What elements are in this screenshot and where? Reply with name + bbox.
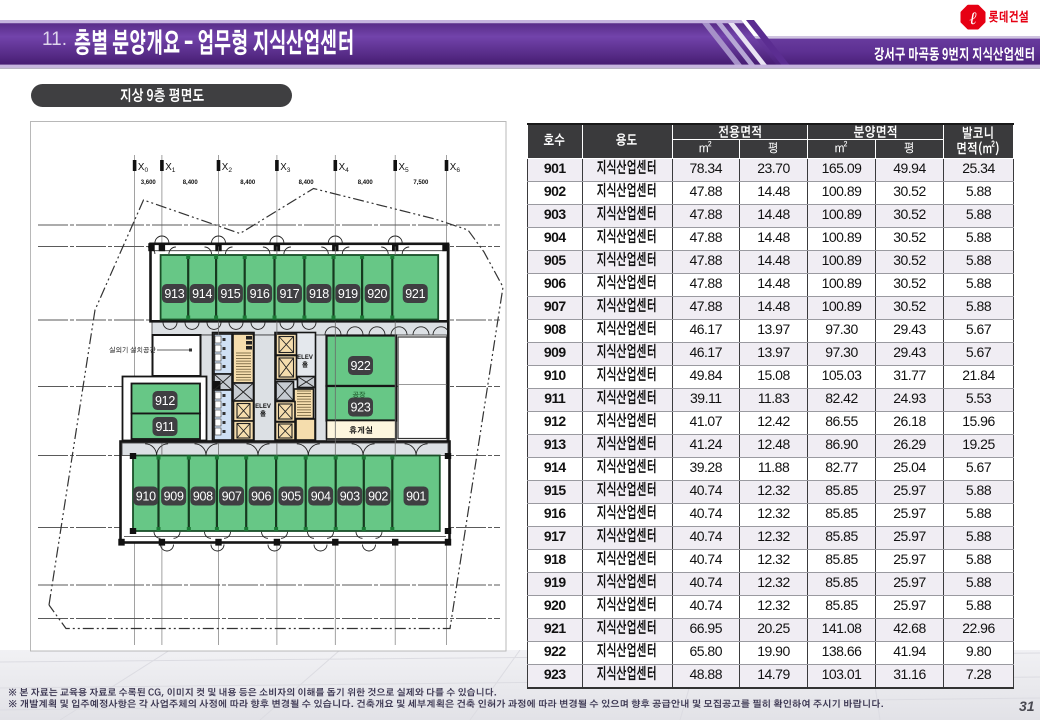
svg-text:909: 909 bbox=[164, 490, 184, 504]
svg-text:11.: 11. bbox=[42, 29, 67, 50]
svg-text:8,400: 8,400 bbox=[240, 180, 256, 186]
svg-text:8,400: 8,400 bbox=[183, 180, 199, 186]
svg-text:903: 903 bbox=[340, 490, 360, 504]
svg-text:915: 915 bbox=[220, 287, 240, 301]
svg-text:913: 913 bbox=[164, 287, 184, 301]
svg-text:7,500: 7,500 bbox=[413, 180, 429, 186]
svg-text:906: 906 bbox=[251, 490, 271, 504]
svg-text:908: 908 bbox=[193, 490, 213, 504]
svg-text:8,400: 8,400 bbox=[358, 180, 374, 186]
svg-text:923: 923 bbox=[351, 401, 371, 415]
svg-text:916: 916 bbox=[250, 287, 270, 301]
svg-text:904: 904 bbox=[311, 490, 331, 504]
svg-text:910: 910 bbox=[136, 490, 156, 504]
svg-text:905: 905 bbox=[281, 490, 301, 504]
svg-text:ℓ: ℓ bbox=[969, 8, 976, 28]
svg-text:922: 922 bbox=[351, 359, 371, 373]
svg-text:911: 911 bbox=[155, 420, 174, 434]
svg-text:ELEV: ELEV bbox=[297, 355, 313, 361]
svg-text:917: 917 bbox=[279, 287, 299, 301]
svg-text:918: 918 bbox=[309, 287, 329, 301]
svg-text:ELEV: ELEV bbox=[255, 404, 271, 410]
svg-text:901: 901 bbox=[406, 490, 426, 504]
svg-text:3,600: 3,600 bbox=[141, 180, 157, 186]
svg-text:921: 921 bbox=[405, 287, 425, 301]
svg-text:31: 31 bbox=[1019, 698, 1035, 714]
svg-text:8,400: 8,400 bbox=[299, 180, 315, 186]
svg-text:914: 914 bbox=[192, 287, 212, 301]
svg-text:902: 902 bbox=[368, 490, 388, 504]
svg-text:912: 912 bbox=[155, 394, 175, 408]
svg-text:919: 919 bbox=[338, 287, 358, 301]
svg-text:920: 920 bbox=[367, 287, 387, 301]
svg-text:907: 907 bbox=[222, 490, 242, 504]
